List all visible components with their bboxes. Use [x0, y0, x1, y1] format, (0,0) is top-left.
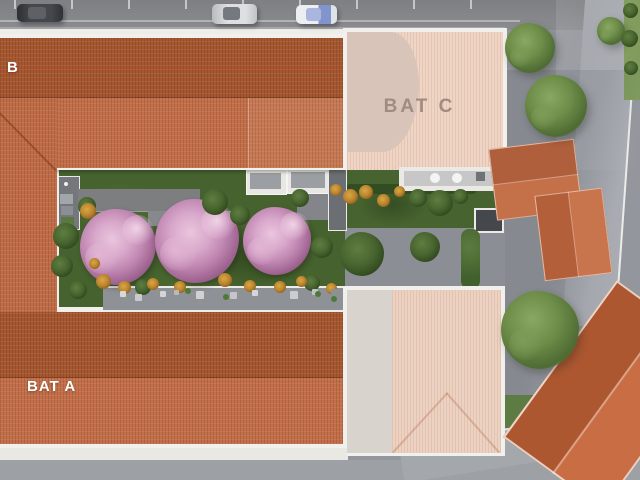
label-building-b: B: [7, 59, 19, 76]
bat-a-eave: [0, 444, 346, 448]
garden-terrace-floor: [250, 173, 281, 189]
neighbor-building-north: [488, 132, 614, 284]
orange-shrub: [80, 203, 96, 219]
terrace-plant: [315, 291, 321, 297]
terrace-furniture: [160, 291, 166, 297]
bat-c-roof-lower: [392, 288, 502, 456]
terrace-furniture-disc: [430, 173, 440, 183]
label-building-a: BAT A: [27, 378, 76, 395]
orange-shrub: [89, 258, 100, 269]
bat-c-lower-edge-bottom: [347, 453, 503, 456]
terrace-furniture-box: [476, 172, 485, 181]
terrace-furniture: [135, 294, 142, 301]
orange-shrub: [330, 184, 342, 196]
terrace-plant: [331, 296, 337, 302]
green-bush: [69, 281, 87, 299]
orange-shrub: [218, 273, 232, 287]
green-bush: [202, 189, 228, 215]
utility-box: [60, 194, 73, 204]
orange-shrub: [359, 185, 373, 199]
entrance-light: [64, 182, 68, 186]
green-bush: [311, 236, 333, 258]
terrace-furniture: [196, 291, 204, 299]
green-bush: [340, 232, 384, 276]
green-bush: [409, 189, 427, 207]
bat-c-edge-top: [345, 28, 507, 32]
car-windshield: [28, 7, 45, 19]
orange-shrub: [296, 276, 307, 287]
parked-car-white-blue: [296, 5, 337, 24]
green-bush: [230, 205, 250, 225]
sidewalk-bottom: [0, 447, 348, 461]
bat-c-lower-edge-top: [345, 286, 505, 290]
corner-hedge-bush: [623, 3, 638, 18]
terrace-furniture: [174, 290, 179, 295]
bat-c-flat-roof: [347, 288, 392, 456]
site-plan-render: B BAT A BAT C: [0, 0, 640, 480]
orange-shrub: [394, 186, 405, 197]
green-bush: [51, 255, 73, 277]
corner-hedge-bush: [621, 30, 638, 47]
terrace-plant: [185, 288, 191, 294]
car-windshield: [223, 7, 240, 20]
terrace-furniture: [120, 291, 126, 297]
corner-hedge-bush: [624, 61, 638, 75]
bat-a-roof-upper: [0, 312, 343, 378]
parked-car-dark: [17, 4, 63, 22]
orange-shrub: [274, 281, 286, 293]
label-building-c: BAT C: [372, 96, 467, 118]
green-bush: [427, 190, 453, 216]
boundary-line-red: [0, 68, 343, 69]
terrace-furniture: [290, 291, 298, 299]
neighbor-roof-section: [534, 188, 612, 282]
orange-shrub: [343, 189, 358, 204]
terrace-furniture: [252, 290, 258, 296]
bat-b-roof-seam: [248, 98, 344, 168]
orange-shrub: [377, 194, 390, 207]
street-tree: [525, 75, 587, 137]
terrace-furniture-disc: [452, 173, 462, 183]
car-windshield: [306, 8, 322, 21]
terrace-furniture: [230, 292, 237, 299]
street-curb-line: [0, 20, 520, 22]
green-bush: [453, 189, 468, 204]
garden-terrace-floor: [291, 172, 325, 188]
parking-stall-lines: [14, 0, 526, 9]
parked-car-silver: [212, 4, 257, 24]
street-tree: [505, 23, 555, 73]
terrace-plant: [223, 294, 229, 300]
green-bush: [410, 232, 440, 262]
green-bush: [53, 223, 79, 249]
street-tree: [501, 291, 579, 369]
utility-box: [61, 206, 73, 215]
hedge-vertical: [461, 229, 480, 289]
orange-shrub: [96, 274, 111, 289]
orange-shrub: [147, 278, 159, 290]
green-bush: [291, 189, 309, 207]
